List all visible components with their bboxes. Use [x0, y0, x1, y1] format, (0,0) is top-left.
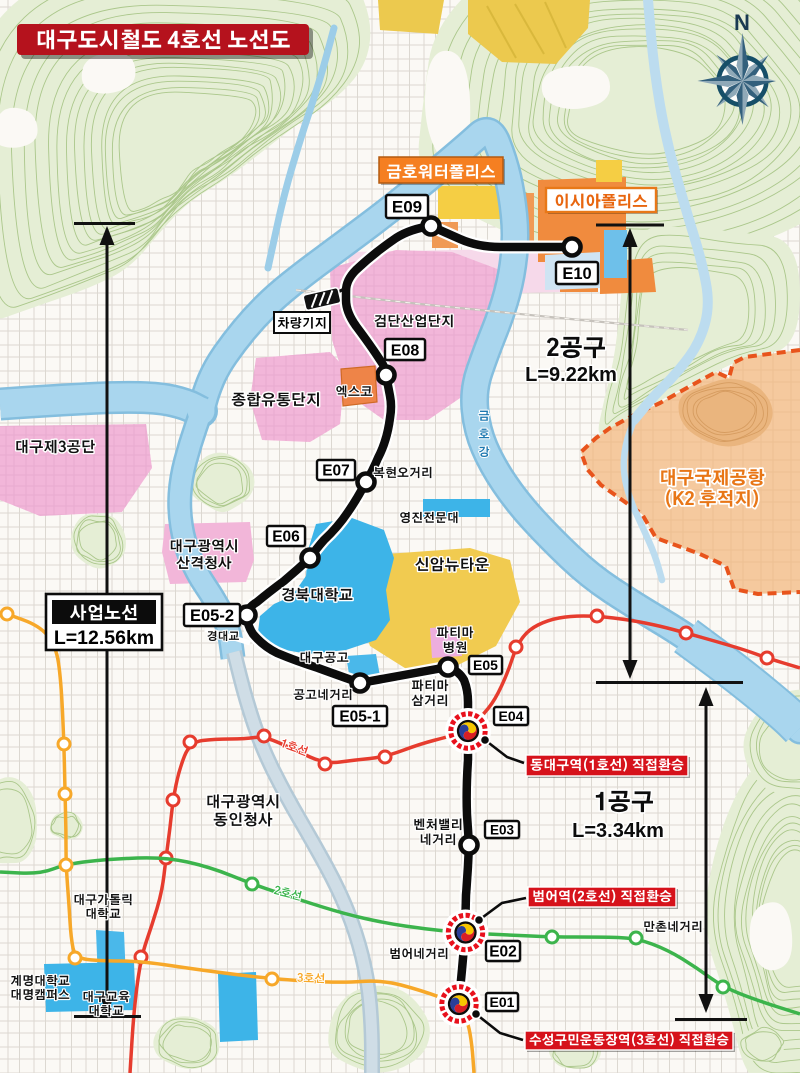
svg-text:E05-2: E05-2 [190, 607, 234, 625]
svg-text:L=9.22km: L=9.22km [525, 364, 617, 386]
svg-text:E10: E10 [562, 265, 591, 283]
svg-text:E04: E04 [499, 708, 524, 724]
svg-text:E05: E05 [473, 657, 498, 673]
svg-text:E08: E08 [391, 342, 420, 359]
svg-text:E07: E07 [322, 463, 350, 480]
svg-text:E02: E02 [489, 944, 517, 961]
svg-text:E05-1: E05-1 [339, 709, 381, 726]
svg-text:N: N [734, 10, 750, 35]
svg-text:L=3.34km: L=3.34km [572, 820, 664, 842]
svg-text:E03: E03 [490, 822, 515, 837]
svg-text:E06: E06 [272, 529, 300, 546]
svg-text:L=12.56km: L=12.56km [54, 627, 154, 649]
svg-text:E01: E01 [490, 994, 515, 1010]
svg-text:E09: E09 [392, 198, 422, 217]
